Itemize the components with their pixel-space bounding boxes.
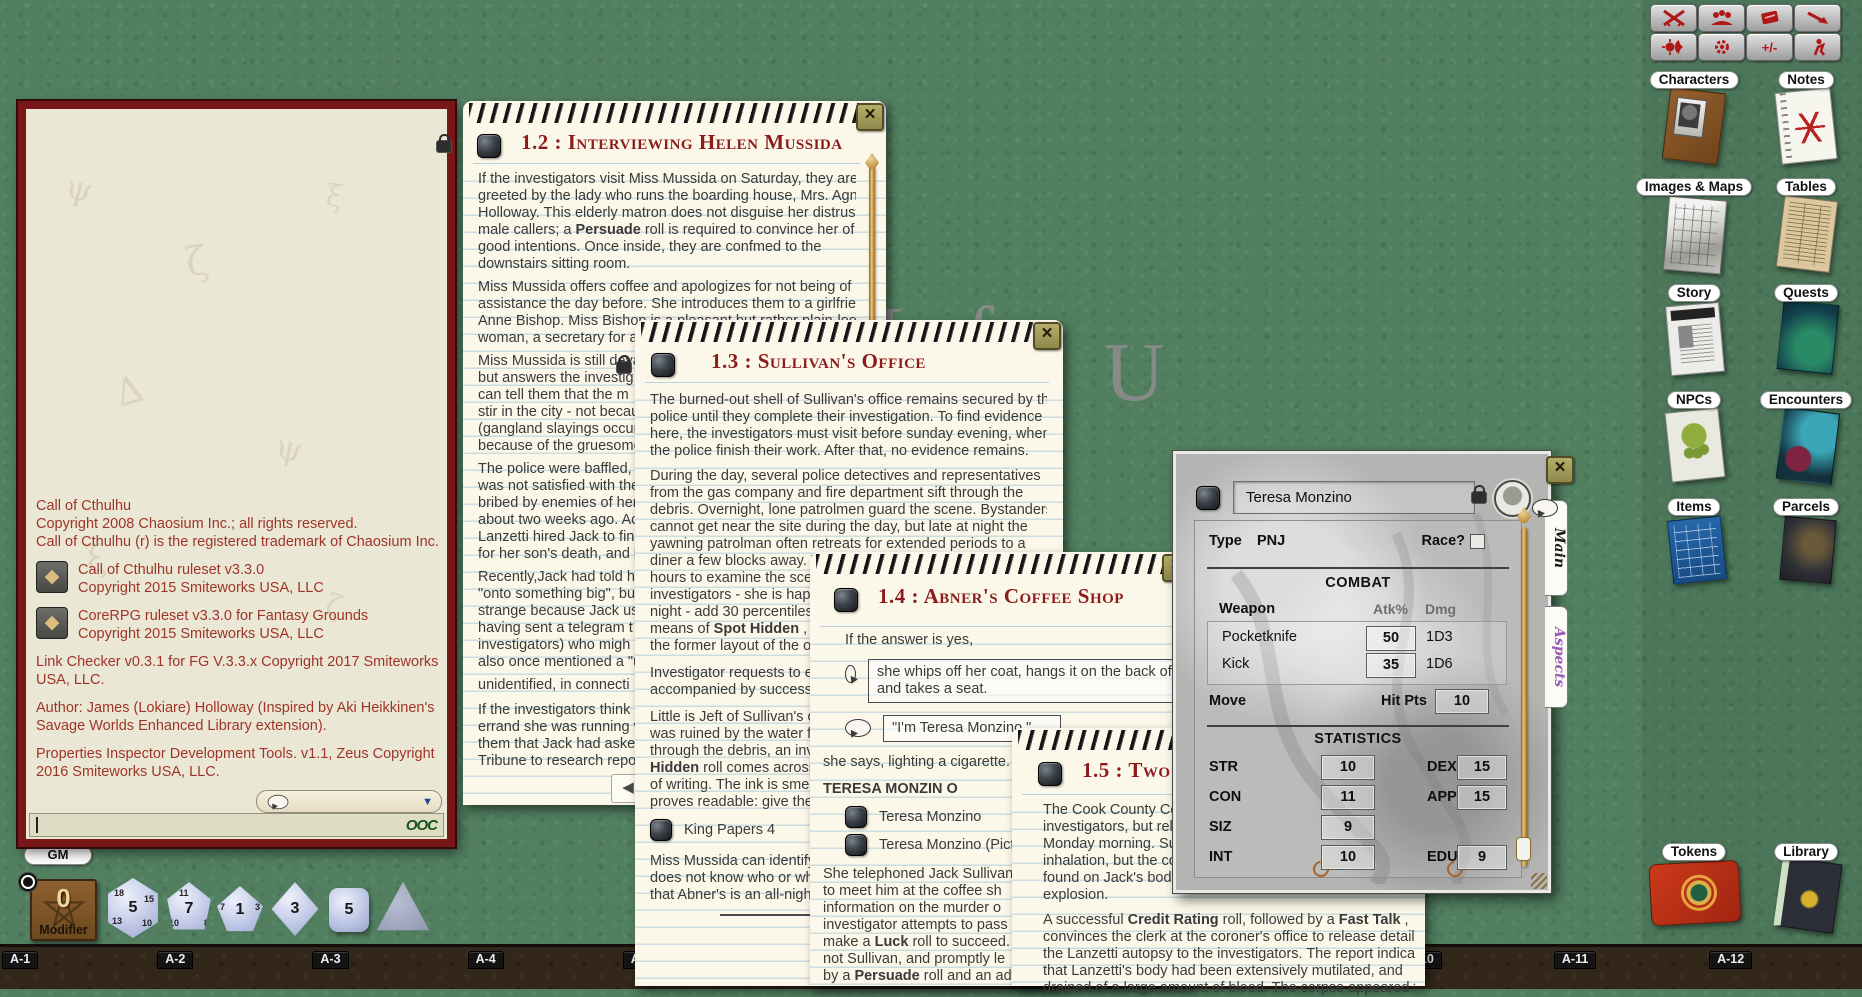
tab-aspects[interactable]: Aspects bbox=[1545, 606, 1568, 708]
sidebar-item-items[interactable]: Items bbox=[1667, 498, 1720, 516]
chat-window: ψ ζ ξ ∆ ψ ξ ζ Call of Cthulhu Copyright … bbox=[18, 101, 455, 847]
type-value[interactable]: PNJ bbox=[1257, 533, 1285, 549]
combat-header: COMBAT bbox=[1195, 575, 1521, 591]
chat-message: Call of Cthulhu bbox=[36, 497, 439, 515]
modifier-label: Modifier bbox=[32, 923, 95, 937]
app-label: APP bbox=[1427, 789, 1457, 805]
lock-icon[interactable] bbox=[617, 362, 631, 373]
npcs-icon[interactable] bbox=[1664, 407, 1725, 482]
dmg-col-header: Dmg bbox=[1425, 601, 1456, 617]
app-field[interactable]: 15 bbox=[1457, 785, 1507, 810]
speech-bubble-icon[interactable] bbox=[1532, 499, 1558, 517]
hotkey-slot[interactable]: A-4 bbox=[466, 947, 621, 989]
close-icon[interactable]: × bbox=[1546, 456, 1574, 484]
d20-icon: ◆ bbox=[36, 561, 68, 593]
party-sheet-button[interactable] bbox=[1698, 4, 1745, 32]
items-icon[interactable] bbox=[1667, 515, 1727, 584]
d6-die[interactable]: 5 bbox=[329, 888, 369, 932]
d10-die[interactable]: 1 7 3 bbox=[215, 886, 265, 934]
speech-bubble-icon bbox=[845, 719, 871, 737]
plus-minus-icon: +/- bbox=[1762, 40, 1778, 55]
characters-icon[interactable] bbox=[1662, 87, 1726, 165]
modifier-box[interactable]: 0 Modifier bbox=[30, 879, 97, 941]
modifier-value: 0 bbox=[32, 883, 95, 914]
gear-icon bbox=[1709, 38, 1735, 56]
speech-bubble-icon bbox=[268, 794, 289, 808]
move-label: Move bbox=[1209, 693, 1246, 709]
divider bbox=[473, 163, 860, 164]
str-label: STR bbox=[1209, 759, 1238, 775]
quests-icon[interactable] bbox=[1776, 299, 1839, 374]
day-night-button[interactable] bbox=[1650, 33, 1697, 61]
resize-grip[interactable] bbox=[1531, 873, 1547, 889]
sidebar-item-characters[interactable]: Characters bbox=[1650, 71, 1739, 89]
int-field[interactable]: 10 bbox=[1321, 845, 1375, 870]
weapon-col-header: Weapon bbox=[1219, 601, 1275, 617]
pointer-button[interactable] bbox=[1794, 4, 1841, 32]
siz-label: SIZ bbox=[1209, 819, 1232, 835]
story-link-icon[interactable] bbox=[1038, 762, 1062, 786]
chat-message-ruleset: ◆ Call of Cthulhu ruleset v3.3.0Copyrigh… bbox=[36, 561, 439, 597]
pointer-arrow-icon bbox=[1805, 9, 1831, 27]
quote-box: she whips off her coat, hangs it on the … bbox=[868, 659, 1186, 703]
dex-label: DEX bbox=[1427, 759, 1457, 775]
watermark-glyph: ψ bbox=[62, 166, 98, 211]
siz-field[interactable]: 9 bbox=[1321, 815, 1375, 840]
parcels-icon[interactable] bbox=[1779, 516, 1836, 584]
close-icon[interactable]: × bbox=[856, 103, 884, 131]
str-field[interactable]: 10 bbox=[1321, 755, 1375, 780]
link-chicklet-icon[interactable] bbox=[650, 819, 672, 841]
link-label[interactable]: Teresa Monzino (Pictur bbox=[879, 837, 1027, 854]
ooc-badge: OOC bbox=[406, 817, 437, 834]
lock-icon[interactable] bbox=[1472, 492, 1486, 503]
tokens-icon[interactable] bbox=[1648, 860, 1741, 927]
chat-message: Properties Inspector Development Tools. … bbox=[36, 745, 439, 781]
people-icon bbox=[1709, 9, 1735, 27]
divider bbox=[820, 626, 1178, 627]
hitpts-field[interactable]: 10 bbox=[1435, 689, 1489, 714]
chat-message: Link Checker v0.3.1 for FG V.3.3.x Copyr… bbox=[36, 653, 439, 689]
chat-message-ruleset: ◆ CoreRPG ruleset v3.3.0 for Fantasy Gro… bbox=[36, 607, 439, 643]
d20-die[interactable]: 5 18 15 13 10 bbox=[104, 878, 162, 938]
speech-bubble-icon bbox=[845, 665, 856, 683]
tables-icon[interactable] bbox=[1776, 195, 1838, 273]
scrollbar-rod[interactable] bbox=[1521, 527, 1527, 867]
dex-field[interactable]: 15 bbox=[1457, 755, 1507, 780]
sidebar-item-images-maps[interactable]: Images & Maps bbox=[1636, 178, 1752, 196]
window-title: 1.2 : Interviewing Helen Mussida bbox=[521, 130, 843, 155]
d12-die[interactable]: 7 11 10 8 bbox=[163, 882, 215, 936]
int-label: INT bbox=[1209, 849, 1232, 865]
library-icon[interactable] bbox=[1773, 856, 1842, 934]
identities-button[interactable] bbox=[1794, 33, 1841, 61]
text-cursor bbox=[36, 817, 38, 833]
spiral-binding bbox=[469, 103, 880, 123]
hitpts-label: Hit Pts bbox=[1381, 693, 1427, 709]
edu-field[interactable]: 9 bbox=[1457, 845, 1507, 870]
sun-moon-icon bbox=[1661, 38, 1687, 56]
link-chicklet-icon[interactable] bbox=[845, 806, 867, 828]
sidebar-item-story[interactable]: Story bbox=[1668, 284, 1721, 302]
story-icon[interactable] bbox=[1665, 302, 1725, 376]
divider bbox=[1207, 567, 1509, 569]
chat-message: Author: James (Lokiare) Holloway (Inspir… bbox=[36, 699, 439, 735]
divider bbox=[1207, 725, 1509, 727]
weapon-name[interactable]: Pocketknife bbox=[1222, 629, 1297, 645]
combat-tracker-button[interactable] bbox=[1650, 4, 1697, 32]
encounters-icon[interactable] bbox=[1776, 407, 1840, 485]
statistics-header: STATISTICS bbox=[1195, 731, 1521, 747]
notes-icon[interactable] bbox=[1774, 87, 1837, 164]
link-label[interactable]: Teresa Monzino bbox=[879, 809, 981, 826]
spiral-binding bbox=[641, 322, 1057, 342]
story-link-icon[interactable] bbox=[651, 353, 675, 377]
window-title: 1.4 : Abner's Coffee Shop bbox=[878, 584, 1124, 609]
con-field[interactable]: 11 bbox=[1321, 785, 1375, 810]
sidebar-item-notes[interactable]: Notes bbox=[1778, 71, 1834, 89]
chat-input[interactable]: OOC bbox=[29, 813, 444, 837]
hotkey-slot[interactable]: A-12 bbox=[1707, 947, 1862, 989]
link-label[interactable]: King Papers 4 bbox=[684, 822, 775, 839]
weapon-atk-field[interactable]: 35 bbox=[1366, 653, 1416, 678]
close-icon[interactable]: × bbox=[1033, 322, 1061, 350]
desktop-watermark-text-2: U bbox=[1104, 324, 1165, 421]
watermark-glyph: ∆ bbox=[110, 366, 148, 416]
window-title: 1.3 : Sullivan's Office bbox=[711, 349, 926, 374]
sidebar-item-tokens[interactable]: Tokens bbox=[1662, 843, 1726, 861]
sidebar-item-npcs[interactable]: NPCs bbox=[1667, 391, 1721, 409]
d4-die[interactable] bbox=[375, 880, 431, 934]
spiral-binding bbox=[816, 554, 1186, 574]
story-link-icon[interactable] bbox=[834, 588, 858, 612]
watermark-glyph: ζ bbox=[182, 237, 211, 286]
watermark-glyph: ξ bbox=[324, 178, 345, 215]
toolbar: +/- bbox=[1650, 4, 1839, 59]
weapons-panel: Pocketknife 50 1D3 Kick 35 1D6 bbox=[1207, 621, 1507, 685]
chat-mode-dropdown[interactable]: ▼ bbox=[256, 790, 442, 813]
divider bbox=[645, 382, 1049, 383]
hotkey-slot[interactable]: A-3 bbox=[310, 947, 465, 989]
hotkey-slot[interactable]: A-1 bbox=[0, 947, 155, 989]
story-link-icon[interactable] bbox=[477, 134, 501, 158]
scrollbar-knob[interactable] bbox=[1516, 837, 1531, 861]
images-maps-icon[interactable] bbox=[1663, 196, 1727, 275]
watermark-glyph: ψ bbox=[272, 427, 306, 472]
con-label: CON bbox=[1209, 789, 1241, 805]
name-field[interactable]: Teresa Monzino bbox=[1233, 481, 1475, 514]
sidebar-item-tables[interactable]: Tables bbox=[1776, 178, 1836, 196]
quote-row: she whips off her coat, hangs it on the … bbox=[845, 659, 1186, 703]
crossed-swords-icon bbox=[1661, 9, 1687, 27]
atk-col-header: Atk% bbox=[1373, 601, 1408, 617]
chat-log: Call of Cthulhu Copyright 2008 Chaosium … bbox=[36, 497, 439, 781]
sidebar-item-quests[interactable]: Quests bbox=[1774, 284, 1838, 302]
story-deck-button[interactable] bbox=[1746, 4, 1793, 32]
chat-message: Copyright 2008 Chaosium Inc.; all rights… bbox=[36, 515, 439, 533]
weapon-dmg[interactable]: 1D6 bbox=[1426, 656, 1453, 672]
story-line: If the answer is yes, bbox=[845, 632, 1186, 649]
race-checkbox[interactable] bbox=[1470, 534, 1485, 549]
type-label: Type bbox=[1209, 533, 1242, 549]
gm-identity-chip[interactable]: GM bbox=[24, 845, 92, 865]
link-chicklet-icon[interactable] bbox=[845, 834, 867, 856]
weapon-name[interactable]: Kick bbox=[1222, 656, 1249, 672]
options-button[interactable] bbox=[1698, 33, 1745, 61]
sidebar-item-library[interactable]: Library bbox=[1774, 843, 1838, 861]
npc-sheet-teresa-monzino: Main Aspects Teresa Monzino × Type PNJ R… bbox=[1173, 451, 1551, 893]
hotkey-slot[interactable]: A-2 bbox=[155, 947, 310, 989]
race-label: Race? bbox=[1421, 533, 1465, 549]
d8-die[interactable]: 3 bbox=[270, 882, 320, 936]
chevron-down-icon: ▼ bbox=[422, 796, 433, 808]
person-icon bbox=[1805, 38, 1831, 56]
sidebar-item-parcels[interactable]: Parcels bbox=[1773, 498, 1839, 516]
red-deck-icon bbox=[1757, 9, 1783, 27]
weapon-dmg[interactable]: 1D3 bbox=[1426, 629, 1453, 645]
sheet-link-icon[interactable] bbox=[1196, 486, 1220, 510]
sidebar-item-encounters[interactable]: Encounters bbox=[1760, 391, 1852, 409]
d20-icon: ◆ bbox=[36, 607, 68, 639]
sheet-main-panel: Type PNJ Race? COMBAT Weapon Atk% Dmg Po… bbox=[1194, 520, 1522, 878]
modifiers-button[interactable]: +/- bbox=[1746, 33, 1793, 61]
chat-message: Call of Cthulhu (r) is the registered tr… bbox=[36, 533, 439, 551]
hotkey-slot[interactable]: A-11 bbox=[1552, 947, 1707, 989]
gear-icon[interactable] bbox=[18, 872, 38, 892]
weapon-atk-field[interactable]: 50 bbox=[1366, 626, 1416, 651]
lock-icon[interactable] bbox=[437, 141, 451, 152]
